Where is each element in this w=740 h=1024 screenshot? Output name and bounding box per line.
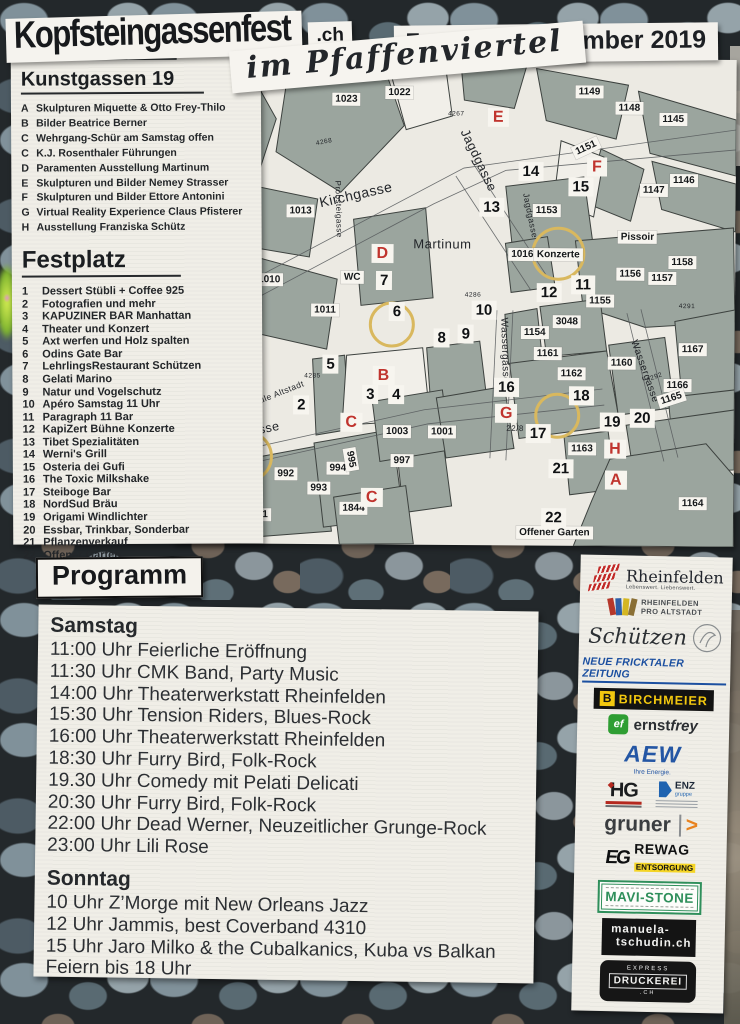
kunstgassen-item-letter: E	[21, 176, 36, 191]
festplatz-item-label: Tibet Spezialitäten	[43, 436, 139, 449]
sponsor-name-part1: ernst	[633, 716, 670, 734]
sponsor-sub: gruppe	[675, 792, 695, 798]
festplatz-item: 13 Tibet Spezialitäten	[23, 435, 257, 449]
sponsor-top: EXPRESS	[627, 966, 669, 973]
program-heading: Programm	[36, 556, 203, 598]
sponsor-name: MAVI-STONE	[605, 889, 694, 906]
kunstgassen-list: A Skulpturen Miquette & Otto Frey-Thilo …	[21, 100, 256, 235]
festplatz-heading: Festplatz	[22, 246, 181, 278]
sponsor-hg-enz-row: ◆HG ENZ gruppe	[606, 780, 699, 809]
festplatz-item-label: NordSud Bräu	[43, 499, 118, 512]
sponsor-schuetzen: Schützen	[588, 620, 722, 653]
map-kunstgassen-letter: F	[587, 157, 607, 176]
map-kunstgassen-letter: E	[488, 108, 509, 127]
festplatz-item: 11 Paragraph 11 Bar	[23, 410, 257, 424]
sponsor-name: NEUE FRICKTALER ZEITUNG	[582, 655, 727, 685]
bird-circle-icon	[692, 622, 723, 653]
festplatz-item-label: Steiboge Bar	[43, 486, 111, 499]
kunstgassen-item: A Skulpturen Miquette & Otto Frey-Thilo	[21, 100, 255, 116]
kunstgassen-item-label: Skulpturen Miquette & Otto Frey-Thilo	[36, 101, 226, 117]
festplatz-item-label: Apéro Samstag 11 Uhr	[43, 398, 160, 411]
kunstgassen-item-letter: H	[22, 221, 37, 236]
festplatz-item: 15 Osteria dei Gufi	[23, 460, 257, 474]
sponsor-sub: .CH	[640, 990, 656, 996]
festplatz-list: 1 Dessert Stübli + Coffee 925 2 Fotograf…	[22, 285, 257, 562]
sponsor-druckerei: EXPRESS DRUCKEREI .CH	[599, 960, 696, 1003]
sponsor-rheinfelden: Rheinfelden Lebenswert. Liebenswert.	[589, 565, 724, 595]
gruner-bar-icon	[679, 815, 681, 837]
kunstgassen-heading: Kunstgassen 19	[21, 68, 205, 95]
kunstgassen-item: F Skulpturen und Bilder Ettore Antonini	[21, 190, 255, 206]
sponsor-ernstfrey: ef ernstfrey	[608, 714, 698, 736]
sponsor-name: Schützen	[588, 623, 687, 649]
enz-b-icon	[659, 781, 672, 797]
festplatz-item-label: Essbar, Trinkbar, Sonderbar	[43, 523, 189, 536]
kunstgassen-item: H Ausstellung Franziska Schütz	[22, 220, 256, 236]
sponsor-name: BIRCHMEIER	[619, 692, 708, 708]
festplatz-item-label: Origami Windlichter	[43, 511, 147, 524]
kunstgassen-item: E Skulpturen und Bilder Nemey Strasser	[21, 175, 255, 191]
kunstgassen-item-label: Paramenten Ausstellung Martinum	[36, 160, 209, 176]
map-kunstgassen-letter: B	[373, 366, 395, 385]
kunstgassen-item-letter: B	[21, 116, 36, 131]
festplatz-item: 12 KapiZert Bühne Konzerte	[23, 423, 257, 437]
kunstgassen-item-label: Skulpturen und Bilder Nemey Strasser	[36, 175, 228, 191]
kunstgassen-item-letter: D	[21, 161, 36, 176]
sponsor-gruner: gruner >	[604, 812, 698, 838]
sponsor-name: gruner	[604, 812, 671, 837]
festplatz-item-number: 13	[23, 436, 43, 449]
program-panel: Samstag 11:00 Uhr Feierliche Eröffnung11…	[33, 605, 538, 984]
sponsor-name-line2: PRO ALTSTADT	[641, 607, 703, 617]
red-arrow-icon: ◆	[608, 775, 614, 795]
festplatz-item-number: 4	[22, 323, 42, 336]
festplatz-item-number: 17	[23, 486, 43, 499]
sponsor-name: DRUCKEREI	[608, 973, 687, 990]
sponsor-name: ◆HG	[610, 780, 638, 801]
sponsor-enz: ENZ gruppe	[656, 781, 699, 808]
festplatz-item: 18 NordSud Bräu	[23, 498, 257, 512]
festplatz-item-number: 21	[23, 537, 43, 550]
sponsor-hg: ◆HG	[606, 780, 643, 808]
sponsor-name: AEW	[622, 740, 684, 768]
festplatz-item-number: 6	[22, 348, 42, 361]
kunstgassen-item-letter: F	[21, 191, 36, 206]
festplatz-item-label: Natur und Vogelschutz	[42, 385, 161, 398]
festplatz-item: 21 Pflanzenverkauf	[23, 535, 257, 549]
festplatz-item: 3 KAPUZINER BAR Manhattan	[22, 310, 256, 324]
festplatz-item-label: Fotografien und mehr	[42, 298, 156, 311]
festplatz-item-number: 14	[23, 449, 43, 462]
festplatz-item-label: Gelati Marino	[42, 373, 112, 386]
kunstgassen-item-label: Wehrgang-Schür am Samstag offen	[36, 130, 214, 146]
festplatz-item-number: 12	[23, 424, 43, 437]
kunstgassen-item-letter: C	[21, 131, 36, 146]
map-kunstgassen-letter: D	[371, 244, 393, 263]
festplatz-item-label: LehrlingsRestaurant Schützen	[42, 360, 201, 373]
festplatz-item-label: Odins Gate Bar	[42, 348, 122, 361]
flower-dot	[2, 292, 12, 304]
festplatz-item: 19 Origami Windlichter	[23, 510, 257, 524]
festplatz-item: 4 Theater und Konzert	[22, 322, 256, 336]
saturday-events: 11:00 Uhr Feierliche Eröffnung11:30 Uhr …	[47, 639, 526, 864]
festplatz-item-number: 15	[23, 461, 43, 474]
festplatz-item: 2 Fotografien und mehr	[22, 297, 256, 311]
festplatz-item-number: 2	[22, 298, 42, 311]
sponsor-name-line2: tschudin.ch	[616, 937, 692, 952]
kunstgassen-item-label: Ausstellung Franziska Schütz	[37, 220, 186, 236]
festplatz-item: 6 Odins Gate Bar	[22, 347, 256, 361]
festplatz-item-number: 10	[23, 399, 43, 412]
ef-icon: ef	[608, 714, 628, 734]
sponsor-tagline: Ihre Energie.	[634, 768, 671, 776]
festplatz-item: 9 Natur und Vogelschutz	[22, 385, 256, 399]
sponsor-name: Rheinfelden	[626, 567, 724, 586]
festplatz-item-label: The Toxic Milkshake	[43, 473, 149, 486]
kunstgassen-item: C Wehrgang-Schür am Samstag offen	[21, 130, 255, 146]
festplatz-item-label: Theater und Konzert	[42, 323, 149, 336]
kunstgassen-item: B Bilder Beatrice Berner	[21, 115, 255, 131]
festplatz-item-number: 19	[23, 511, 43, 524]
sponsor-tschudin: manuela- tschudin.ch	[602, 918, 696, 957]
festplatz-item: 1 Dessert Stübli + Coffee 925	[22, 285, 256, 299]
sponsor-panel: Rheinfelden Lebenswert. Liebenswert. RHE…	[571, 554, 733, 1013]
birchmeier-b-icon: B	[600, 691, 615, 706]
kunstgassen-item-letter: G	[21, 206, 36, 221]
festplatz-item: 7 LehrlingsRestaurant Schützen	[22, 360, 256, 374]
poster-photo: KirchgasseJagdgasseJagdgasseProbsteigass…	[0, 0, 740, 1024]
sponsor-birchmeier: B BIRCHMEIER	[593, 688, 714, 712]
festplatz-item: 17 Steiboge Bar	[23, 485, 257, 499]
festplatz-item-number: 11	[23, 411, 43, 424]
festplatz-item-number: 5	[22, 336, 42, 349]
festplatz-item-number: 16	[23, 474, 43, 487]
sponsor-mavistone: MAVI-STONE	[597, 879, 702, 914]
festplatz-item-number: 9	[22, 386, 42, 399]
map-kunstgassen-letter: A	[605, 471, 627, 490]
festplatz-item-number: 3	[22, 311, 42, 324]
map-kunstgassen-letter: C	[340, 413, 362, 432]
kunstgassen-item-letter: A	[21, 102, 36, 117]
festplatz-item: 5 Axt werfen und Holz spalten	[22, 335, 256, 349]
festplatz-item: 14 Werni's Grill	[23, 448, 257, 462]
kunstgassen-item-label: Bilder Beatrice Berner	[36, 116, 147, 131]
kunstgassen-item-label: K.J. Rosenthaler Führungen	[36, 146, 177, 162]
sponsor-nfz: NEUE FRICKTALER ZEITUNG	[582, 655, 727, 685]
gruner-arrow-icon: >	[686, 814, 699, 838]
hg-gray-bar	[606, 805, 642, 808]
map-kunstgassen-letter: C	[361, 488, 383, 507]
festplatz-item-label: Paragraph 11 Bar	[43, 411, 134, 424]
sponsor-name: REWAG	[634, 842, 696, 858]
festplatz-item: 8 Gelati Marino	[22, 372, 256, 386]
kunstgassen-item-letter: C	[21, 146, 36, 161]
festplatz-item-label: Axt werfen und Holz spalten	[42, 335, 189, 348]
festplatz-item-number: 20	[23, 524, 43, 537]
sponsor-name-part2: frey	[670, 717, 698, 735]
sponsor-rewag: EG REWAG ENTSORGUNG	[605, 841, 695, 876]
festplatz-item: 10 Apéro Samstag 11 Uhr	[23, 397, 257, 411]
kunstgassen-item-label: Virtual Reality Experience Claus Pfister…	[36, 205, 242, 221]
festplatz-item-number: 7	[22, 361, 42, 374]
map-kunstgassen-letter: H	[604, 440, 626, 459]
festplatz-item: 16 The Toxic Milkshake	[23, 473, 257, 487]
map-kunstgassen-letter: G	[495, 404, 518, 423]
festplatz-item: 20 Essbar, Trinkbar, Sonderbar	[23, 523, 257, 537]
festplatz-item-label: Dessert Stübli + Coffee 925	[42, 285, 184, 298]
kunstgassen-item: D Paramenten Ausstellung Martinum	[21, 160, 255, 176]
festplatz-item-label: KapiZert Bühne Konzerte	[43, 423, 175, 436]
sponsor-aew: AEW Ihre Energie.	[624, 740, 681, 776]
sunday-events: 10 Uhr Z’Morge mit New Orleans Jazz12 Uh…	[45, 892, 522, 986]
rewag-eg-icon: EG	[604, 847, 631, 869]
sponsor-name: ENZ	[675, 782, 695, 792]
kunstgassen-item: G Virtual Reality Experience Claus Pfist…	[21, 205, 255, 221]
books-icon	[609, 598, 636, 616]
festplatz-item-number: 8	[22, 373, 42, 386]
festplatz-item-number: 18	[23, 499, 43, 512]
enz-text-lines	[656, 798, 698, 808]
festplatz-item-label: Pflanzenverkauf	[43, 536, 127, 549]
festplatz-item-number: 1	[22, 286, 42, 299]
festplatz-item-label: Werni's Grill	[43, 448, 107, 461]
legend-panel: Kunstgassen 19 A Skulpturen Miquette & O…	[11, 59, 264, 544]
sponsor-sub: ENTSORGUNG	[634, 863, 696, 873]
rheinfelden-flag-icon	[589, 565, 622, 593]
festplatz-item-label: KAPUZINER BAR Manhattan	[42, 310, 191, 323]
kunstgassen-item: C K.J. Rosenthaler Führungen	[21, 145, 255, 161]
kunstgassen-item-label: Skulpturen und Bilder Ettore Antonini	[36, 190, 224, 206]
festplatz-item-label: Osteria dei Gufi	[43, 461, 125, 474]
sponsor-pro-altstadt: RHEINFELDEN PRO ALTSTADT	[609, 597, 703, 617]
